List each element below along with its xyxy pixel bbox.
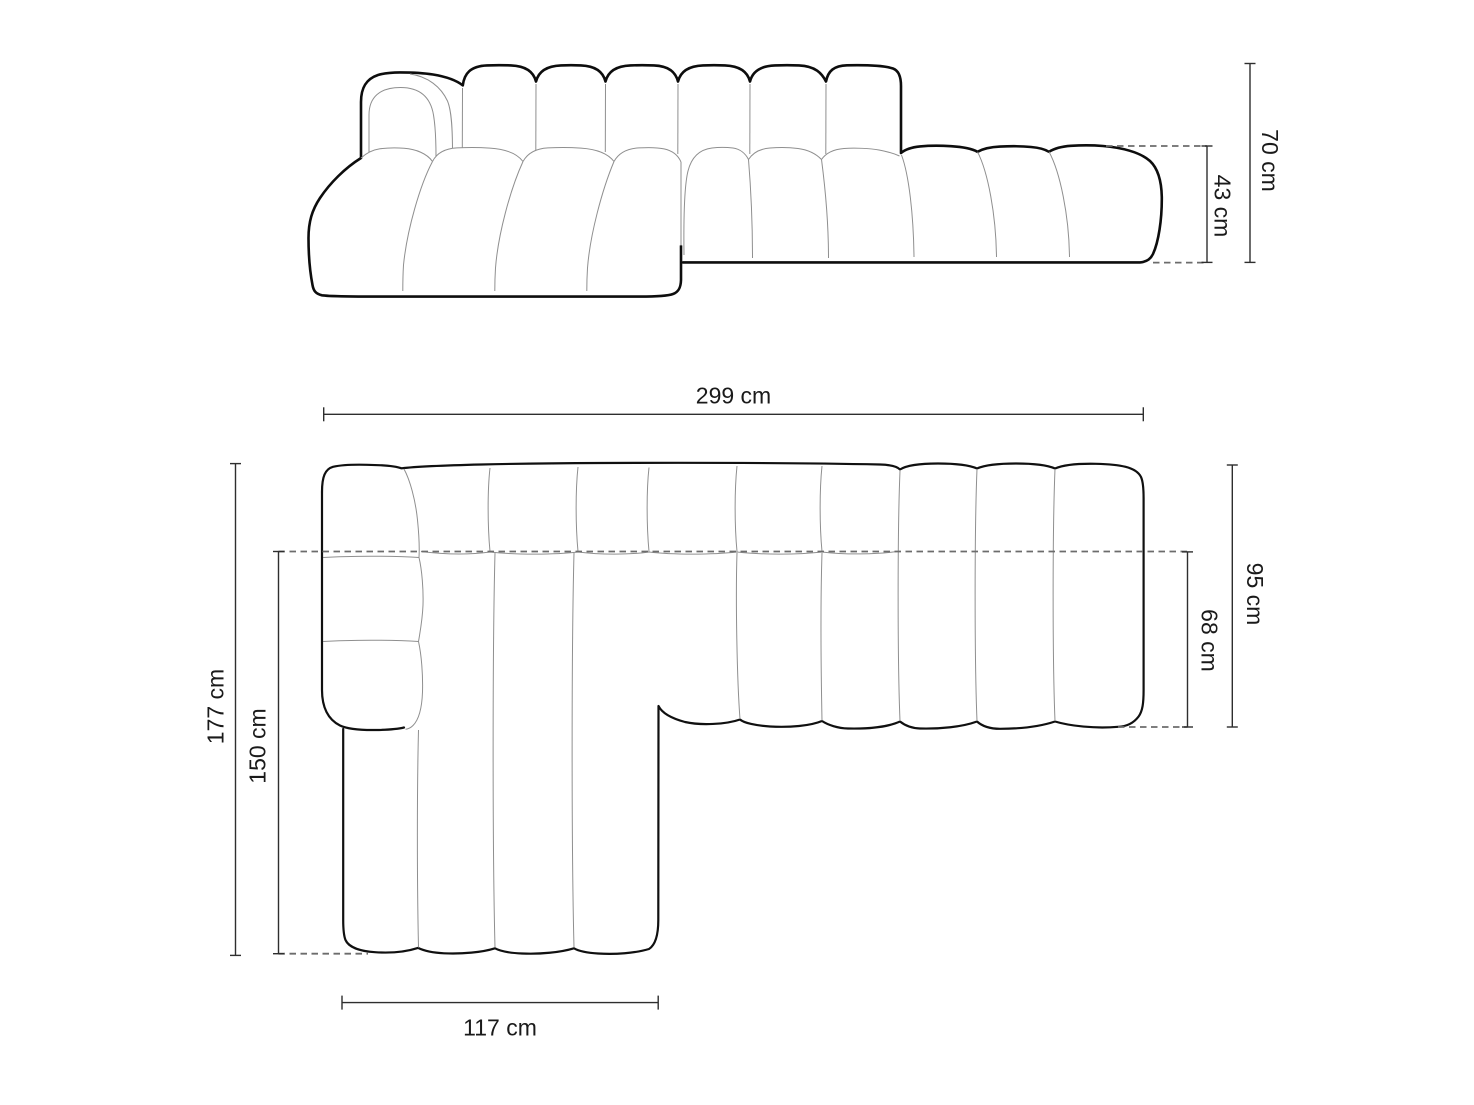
svg-text:150 cm: 150 cm xyxy=(245,708,271,783)
svg-text:117 cm: 117 cm xyxy=(463,1015,537,1041)
svg-text:68 cm: 68 cm xyxy=(1197,609,1223,672)
svg-text:43 cm: 43 cm xyxy=(1210,175,1236,238)
svg-text:95 cm: 95 cm xyxy=(1242,563,1268,626)
svg-text:299 cm: 299 cm xyxy=(696,383,771,409)
svg-text:70 cm: 70 cm xyxy=(1257,129,1283,192)
svg-text:177 cm: 177 cm xyxy=(203,669,229,744)
